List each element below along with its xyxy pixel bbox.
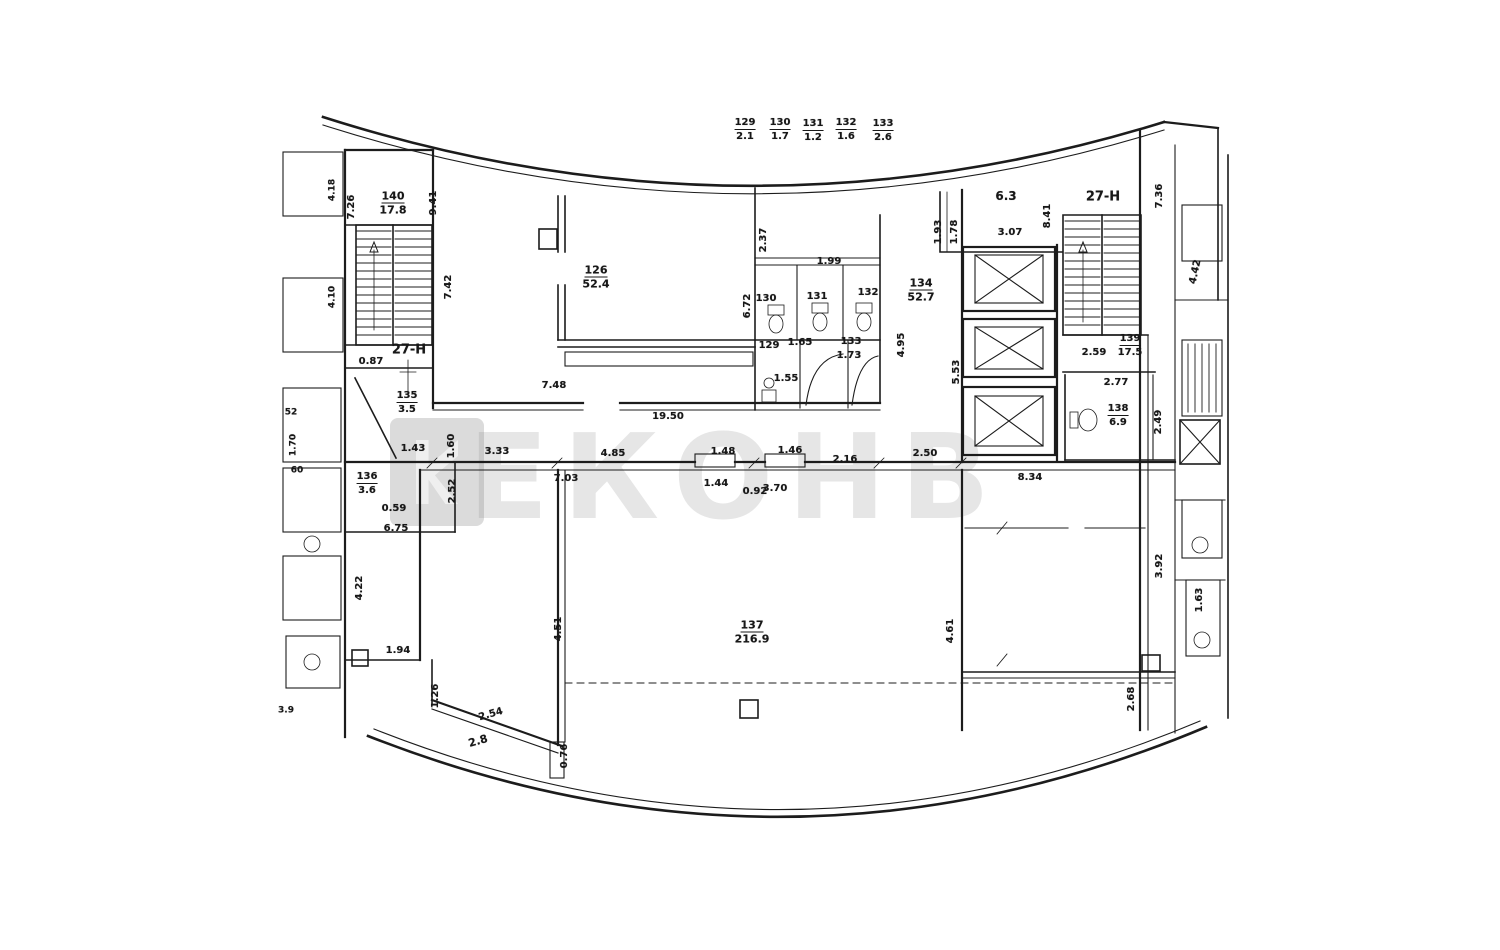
dimension-label: 2.77	[1104, 378, 1129, 388]
dimension-label: 7.36	[1155, 184, 1165, 209]
room-number: 129	[759, 341, 780, 351]
room-number: 134	[910, 278, 933, 291]
dimension-label: 1.55	[774, 374, 799, 384]
dimension-label: 1.46	[778, 446, 803, 456]
dimension-label: 0.76	[560, 744, 570, 769]
dimension-label: 6.72	[743, 294, 753, 319]
dimension-label: 8.34	[1018, 473, 1043, 483]
dimension-label: 2.37	[759, 228, 769, 253]
dimension-label: 1.65	[788, 338, 813, 348]
dimension-label: 2.52	[448, 479, 458, 504]
floor-plan: ЕКОНВ	[0, 0, 1500, 950]
room-number: 136	[357, 472, 378, 484]
dimension-label: 0.59	[382, 504, 407, 514]
room-area: 6.3	[995, 190, 1016, 202]
room-area: 6.9	[1109, 418, 1127, 428]
dimension-label: 2.49	[1154, 410, 1164, 435]
room-number: 132	[858, 288, 879, 298]
dimension-label: 2.50	[913, 449, 938, 459]
dimension-label: 4.95	[897, 333, 907, 358]
legend-room-area: 2.6	[874, 133, 892, 143]
dimension-label: 4.22	[355, 576, 365, 601]
dimension-label: 9.41	[429, 191, 439, 216]
dimension-label: 3.33	[485, 447, 510, 457]
floor-plan-linework	[0, 0, 1500, 950]
dimension-label: 60	[291, 467, 304, 476]
room-area: 3.5	[398, 405, 416, 415]
dimension-label: 1.26	[431, 684, 441, 709]
room-number: 126	[585, 265, 608, 278]
dimension-label: 1.94	[386, 646, 411, 656]
room-number: 135	[397, 391, 418, 403]
dimension-label: 1.63	[1195, 588, 1205, 613]
room-number: 130	[756, 294, 777, 304]
dimension-label: 52	[285, 409, 298, 418]
legend-room-number: 131	[803, 119, 824, 131]
dimension-label: 1.48	[711, 447, 736, 457]
legend-room-number: 132	[836, 118, 857, 130]
zone-label: 27-Н	[392, 344, 426, 357]
dimension-label: 4.61	[946, 619, 956, 644]
dimension-label: 4.85	[601, 449, 626, 459]
dimension-label: 19.50	[652, 412, 684, 422]
dimension-label: 5.53	[952, 360, 962, 385]
dimension-label: 4.18	[329, 179, 338, 201]
dimension-label: 7.03	[554, 474, 579, 484]
dimension-label: 2.16	[833, 455, 858, 465]
room-number: 138	[1108, 404, 1129, 416]
room-area: 17.8	[379, 205, 406, 216]
dimension-label: 1.43	[401, 444, 426, 454]
dimension-label: 2.68	[1127, 687, 1137, 712]
room-area: 52.4	[582, 279, 609, 290]
legend-room-number: 129	[735, 118, 756, 130]
room-area: 52.7	[907, 292, 934, 303]
dimension-label: 3.92	[1155, 554, 1165, 579]
dimension-label: 0.87	[359, 357, 384, 367]
legend-room-number: 133	[873, 119, 894, 131]
dimension-label: 3.70	[763, 484, 788, 494]
legend-room-area: 1.2	[804, 133, 822, 143]
legend-room-area: 1.7	[771, 132, 789, 142]
dimension-label: 7.26	[347, 195, 357, 220]
dimension-label: 1.70	[290, 434, 299, 456]
room-number: 139	[1120, 334, 1141, 346]
dimension-label: 3.07	[998, 228, 1023, 238]
legend-room-number: 130	[770, 118, 791, 130]
dimension-label: 1.44	[704, 479, 729, 489]
legend-room-area: 1.6	[837, 132, 855, 142]
room-number: 131	[807, 292, 828, 302]
dimension-label: 1.73	[837, 351, 862, 361]
legend-room-area: 2.1	[736, 132, 754, 142]
dimension-label: 8.41	[1043, 204, 1053, 229]
dimension-label: 4.51	[554, 617, 564, 642]
zone-label: 27-Н	[1086, 191, 1120, 204]
dimension-label: 1.93	[934, 220, 944, 245]
dimension-label: 4.10	[329, 286, 338, 308]
dimension-label: 2.59	[1082, 348, 1107, 358]
room-number: 133	[841, 337, 862, 347]
room-number: 140	[382, 191, 405, 204]
room-number: 137	[741, 620, 764, 633]
dimension-label: 1.60	[447, 434, 457, 459]
room-area: 216.9	[735, 634, 770, 645]
room-area: 3.6	[358, 486, 376, 496]
dimension-label: 6.75	[384, 524, 409, 534]
dimension-label: 1.99	[817, 257, 842, 267]
dimension-label: 1.78	[950, 220, 960, 245]
dimension-label: 7.42	[444, 275, 454, 300]
room-area: 17.5	[1118, 348, 1143, 358]
dimension-label: 3.9	[278, 707, 294, 716]
dimension-label: 7.48	[542, 381, 567, 391]
